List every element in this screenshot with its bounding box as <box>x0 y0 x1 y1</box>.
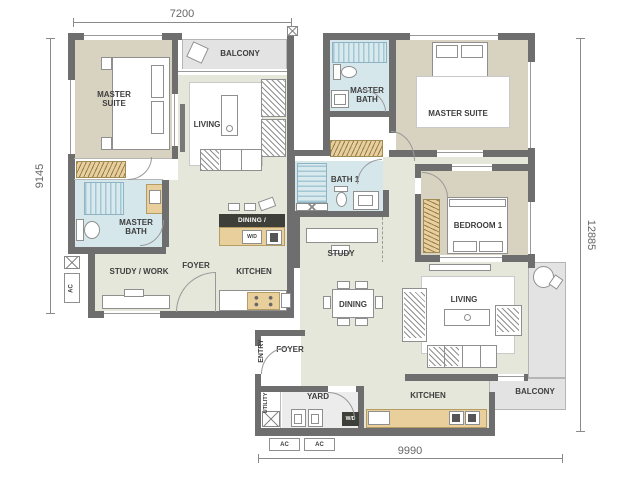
dim-line-bottom <box>258 458 563 459</box>
console <box>429 264 491 271</box>
room-label-study: STUDY <box>316 249 366 258</box>
room-label-dining: DINING <box>328 300 378 309</box>
window <box>172 94 178 146</box>
laundry-sink-basin <box>311 414 319 424</box>
stove-burner <box>468 414 476 422</box>
toilet-tank <box>333 64 341 80</box>
laundry-sink-basin <box>294 414 302 424</box>
dim-tick <box>576 38 585 39</box>
chair <box>337 281 350 289</box>
headboard <box>449 199 506 207</box>
wall <box>68 247 166 254</box>
kitchen-sink <box>368 411 390 425</box>
ac-ledge-box <box>287 26 298 36</box>
wall <box>415 194 421 262</box>
dining-breakfast-label-box: DINING / BREAKFAST <box>219 214 285 227</box>
room-label-master-suite: MASTER SUITE <box>418 109 498 118</box>
sink-basin <box>334 94 346 105</box>
ac-unit: AC <box>269 438 300 451</box>
room-label-bedroom1: BEDROOM 1 <box>443 221 513 230</box>
stove <box>247 292 280 310</box>
dim-tick <box>258 454 259 463</box>
unit-a-shower <box>84 182 124 215</box>
desk <box>306 228 378 243</box>
chair <box>337 318 350 326</box>
monitor <box>124 289 144 297</box>
dim-tick <box>73 18 74 27</box>
sofa-throw <box>404 292 425 338</box>
dim-label-bottom: 9990 <box>370 445 450 457</box>
room-label-kitchen: KITCHEN <box>396 391 460 400</box>
pillow <box>453 241 477 252</box>
pillow <box>151 101 164 134</box>
unit-a-wardrobe <box>76 161 126 178</box>
dim-tick <box>46 38 55 39</box>
pillow <box>151 65 164 98</box>
kitchen-sink <box>281 293 291 308</box>
oven-door <box>270 233 278 242</box>
window <box>452 164 492 171</box>
dim-tick <box>46 313 55 314</box>
wall <box>162 180 169 247</box>
wall-thin <box>74 158 172 159</box>
unit-a-sink <box>149 190 161 204</box>
sofa-divider <box>241 149 242 171</box>
wall <box>255 428 495 436</box>
sliding-door <box>178 69 287 75</box>
wall <box>289 150 331 156</box>
sliding-door <box>498 374 524 381</box>
sofa-throw <box>429 347 459 366</box>
toilet-tank <box>76 219 84 241</box>
stove-burner <box>452 414 460 422</box>
window <box>440 255 502 262</box>
desk <box>102 295 170 309</box>
nightstand <box>101 137 112 150</box>
dim-label-right: 12885 <box>585 210 597 260</box>
sofa-divider <box>220 149 221 171</box>
stool <box>228 203 240 211</box>
window <box>410 33 498 40</box>
window <box>84 33 162 40</box>
wall <box>289 211 389 217</box>
window <box>104 311 160 318</box>
wall <box>383 190 389 217</box>
wall <box>415 164 421 178</box>
dim-line-right <box>580 38 581 432</box>
washer-dryer-box: W/D <box>242 230 262 244</box>
room-label-living: LIVING <box>434 295 494 304</box>
sofa-divider <box>462 345 463 368</box>
sink-basin <box>358 195 373 206</box>
toilet-bowl <box>84 221 100 239</box>
dim-line-left <box>50 38 51 314</box>
armchair-throw <box>497 308 519 332</box>
unit-b-hall-floor2 <box>415 157 528 164</box>
unit-b-shower <box>332 42 387 63</box>
stool <box>244 203 256 211</box>
dim-line-top <box>73 22 291 23</box>
window <box>528 62 535 148</box>
window <box>68 80 75 154</box>
window <box>437 150 483 157</box>
sofa-throw <box>201 150 219 170</box>
door-leaf <box>215 272 216 312</box>
wall <box>389 33 396 133</box>
dim-tick <box>576 431 585 432</box>
plant-shelf <box>261 79 286 117</box>
bath-shelf <box>296 203 328 211</box>
wall <box>294 217 300 268</box>
room-label-foyer: FOYER <box>171 261 221 270</box>
room-label-master-suite: MASTER SUITE <box>86 90 142 108</box>
dim-label-left: 9145 <box>34 154 46 198</box>
toilet-bowl <box>341 66 357 78</box>
nightstand <box>101 57 112 70</box>
dim-label-top: 7200 <box>142 8 222 20</box>
room-label-kitchen: KITCHEN <box>226 267 282 276</box>
unit-b-wardrobe <box>330 140 383 157</box>
wall <box>323 33 330 156</box>
room-label-utility: UTILITY <box>263 380 273 426</box>
ac-ledge-box <box>64 256 80 269</box>
rug <box>416 76 510 128</box>
ac-unit: AC <box>304 438 335 451</box>
chair <box>355 281 368 289</box>
unit-b-dressing-floor <box>330 117 389 140</box>
room-label-study-work: STUDY / WORK <box>99 267 179 276</box>
wall <box>255 374 261 434</box>
pillow <box>479 241 503 252</box>
unit-b-bedroom1-wardrobe <box>423 199 440 253</box>
plant-shelf <box>261 119 286 157</box>
ac-label: AC <box>69 269 76 309</box>
pillow <box>436 45 458 58</box>
wall <box>289 155 295 217</box>
decor-bowl <box>464 314 471 321</box>
room-label-balcony: BALCONY <box>505 387 565 396</box>
room-label-living: LIVING <box>182 120 232 129</box>
floor-plan: 7200 9145 12885 9990 <box>0 0 640 480</box>
toilet-bowl <box>336 192 347 207</box>
wall <box>88 252 95 318</box>
chair <box>355 318 368 326</box>
sofa-divider <box>480 345 481 368</box>
wall-thin <box>74 179 163 180</box>
dim-tick <box>562 454 563 463</box>
unit-b-hall-floor3 <box>383 217 415 268</box>
room-label-balcony: BALCONY <box>205 49 275 58</box>
pillow <box>461 45 483 58</box>
window <box>528 202 535 254</box>
